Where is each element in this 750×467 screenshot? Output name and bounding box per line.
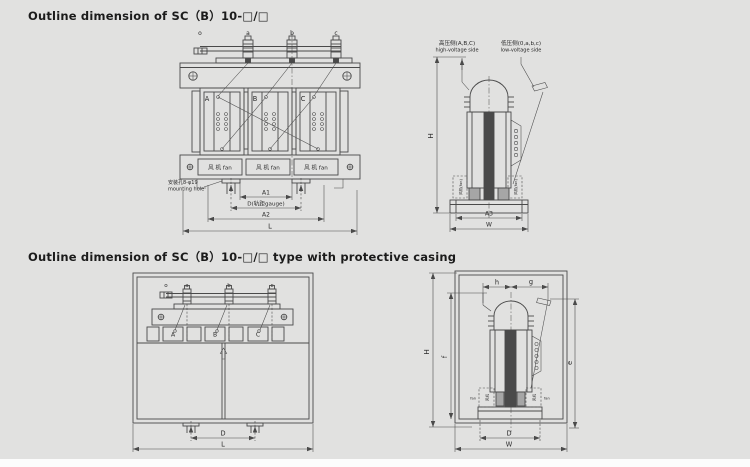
lv-terminal-label-c: c [270, 283, 273, 289]
dim-label-d: D [220, 430, 225, 438]
phase-label-C: C [301, 95, 306, 103]
dim-label-w: W [506, 441, 513, 449]
mounting-hole-label-en: mounting hole [168, 187, 204, 193]
lv-terminal-label-b: b [227, 283, 231, 289]
dim-label-l: L [268, 223, 272, 231]
dim-label-f: f [441, 355, 449, 358]
top-clamp-beam [180, 63, 360, 88]
dim-label-d: D [506, 430, 511, 438]
dim-label-a2: A2 [262, 212, 270, 219]
casing-doors [137, 343, 309, 419]
dim-label-gauge: D(轨距gauge) [247, 200, 284, 208]
fan-label-1: 风 机 fan [208, 164, 232, 172]
lv-terminal-label-o: o [164, 283, 168, 289]
fan-label-3: 风 机 fan [304, 164, 328, 172]
bottom-front-view: o a b c A B C [133, 273, 313, 452]
dim-label-h: H [426, 133, 435, 139]
mounting-hole-leader [204, 181, 222, 187]
h-big-dimension [429, 273, 472, 427]
top-side-view: 高压侧(A,B,C) high-voltage side 低压侧(0,a,b,c… [426, 39, 548, 232]
phase-label-A: A [205, 95, 210, 103]
side-fan-caption-right: fan [544, 397, 550, 401]
lv-side-label-en: low-voltage side [501, 48, 542, 54]
h-g-dimensions [483, 283, 548, 303]
hv-lead [462, 58, 469, 90]
phase-label-C: C [256, 332, 260, 339]
dim-label-h-small: h [495, 279, 499, 287]
door-arrow-icon [220, 348, 226, 359]
coil-columns [192, 33, 348, 180]
side-fan-label-left: 风机(fan) [458, 179, 463, 195]
technical-drawing-canvas: o a b c A B C [0, 0, 750, 467]
phase-label-B: B [253, 95, 258, 103]
lv-bushings [160, 286, 280, 310]
side-fan-label-right: 风机 [532, 394, 537, 402]
dim-label-w: W [486, 222, 492, 229]
hv-side-label-cn: 高压侧(A,B,C) [439, 39, 475, 47]
dim-label-l: L [221, 441, 225, 449]
side-fan-label-right: 风机(fan) [513, 179, 518, 195]
lv-terminal-label-a: a [185, 283, 188, 289]
side-fan-caption-left: fan [470, 397, 476, 401]
dim-label-a3: A3 [485, 211, 493, 218]
lv-bushings [200, 36, 352, 63]
bottom-side-view: H f h g e 风机 风机 fan [422, 271, 579, 452]
lv-lead [513, 57, 548, 184]
lv-side-label-cn: 低压侧(0,a,b,c) [501, 39, 541, 47]
dim-label-e: e [566, 361, 574, 365]
fan-label-2: 风 机 fan [256, 164, 280, 172]
bottom-margin [0, 459, 750, 467]
e-dimension [550, 299, 579, 428]
dim-label-g: g [529, 278, 533, 286]
phase-label-B: B [213, 332, 217, 339]
hv-side-label-en: high-voltage side [435, 48, 478, 54]
lv-terminal-label-o: o [198, 30, 202, 37]
f-dimension [447, 293, 487, 419]
top-front-view: o a b c A B C [168, 30, 360, 235]
side-fan-label-left: 风机 [485, 394, 490, 402]
dim-label-H: H [422, 349, 431, 355]
dim-label-a1: A1 [262, 190, 270, 197]
mounting-hole-label-cn: 安装孔8-φ19 [168, 179, 198, 186]
